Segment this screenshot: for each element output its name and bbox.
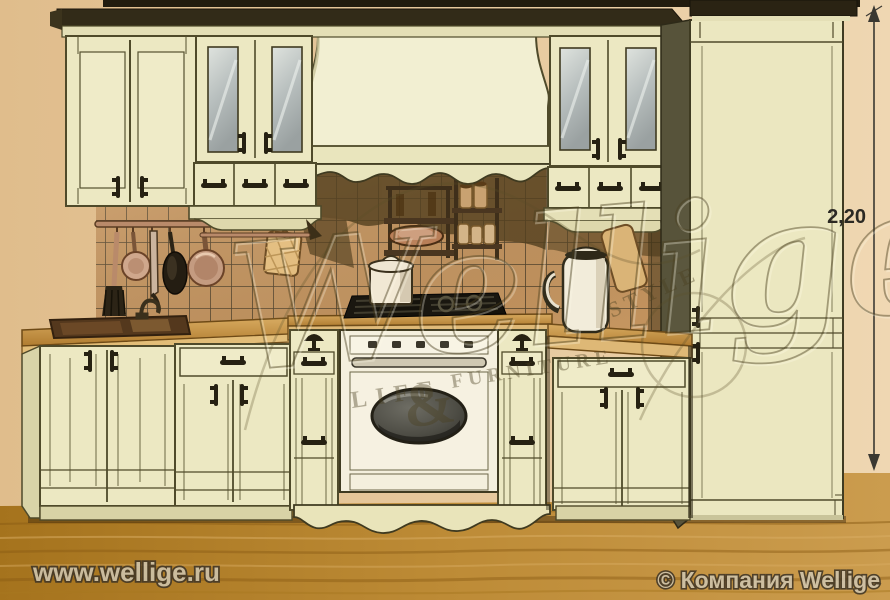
glass-cabinet-left — [196, 36, 312, 162]
glass-cabinet-right — [550, 36, 668, 166]
kitchen-scene-svg: 2,20 Wellige Wellige LIFE & FURNITURE ST… — [0, 0, 890, 600]
sink — [50, 316, 190, 338]
footer-copyright: © Компания Wellige — [657, 567, 880, 593]
footer-website: www.wellige.ru — [32, 557, 220, 587]
base-cabinet-sink — [22, 346, 175, 518]
kitchen-render: 2,20 Wellige Wellige LIFE & FURNITURE ST… — [0, 0, 890, 600]
range-hood — [304, 34, 550, 184]
spice-drawers-left — [194, 163, 316, 206]
upper-cabinet-left — [66, 36, 196, 206]
